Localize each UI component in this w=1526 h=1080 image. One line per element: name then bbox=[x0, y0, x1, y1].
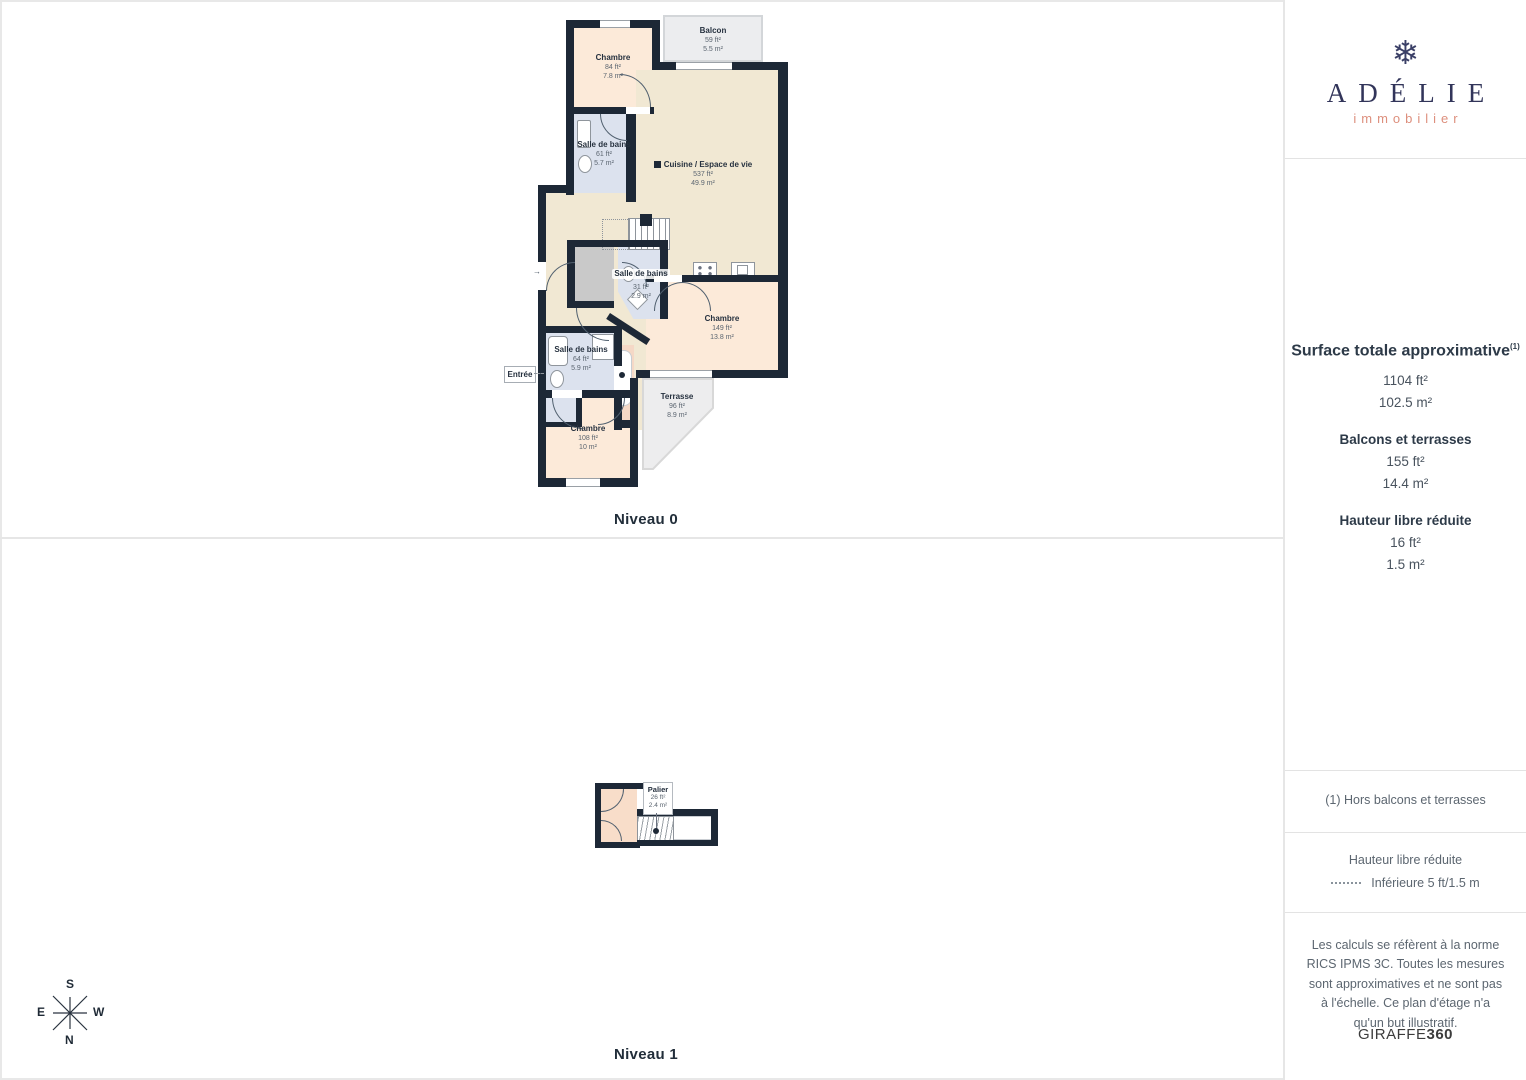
room-area-m: 13.8 m² bbox=[662, 333, 782, 342]
stair-void bbox=[672, 816, 712, 840]
room-area-m: 8.9 m² bbox=[637, 411, 717, 420]
surface-total-ft: 1104 ft² bbox=[1285, 370, 1526, 392]
credit-suffix: 360 bbox=[1426, 1026, 1453, 1043]
section-divider bbox=[1285, 158, 1526, 159]
compass-n: N bbox=[65, 1033, 74, 1047]
room-name: Salle de bains bbox=[612, 269, 669, 279]
footnote-mark: (1) bbox=[1510, 342, 1520, 351]
window bbox=[566, 478, 600, 487]
room-area-m: 10 m² bbox=[528, 443, 648, 452]
snowflake-icon: ❄ bbox=[1285, 36, 1526, 69]
disclaimer-text: Les calculs se réfèrent à la norme RICS … bbox=[1305, 936, 1506, 1033]
floorplan-page: Entrée → Chambre 84 ft² 7.8 m² Salle de … bbox=[0, 0, 1526, 1080]
room-label: Salle de bains 64 ft² 5.9 m² bbox=[541, 345, 621, 374]
niveau0-title: Niveau 0 bbox=[614, 511, 678, 528]
compass-e: E bbox=[37, 1005, 45, 1019]
room-label: Chambre 149 ft² 13.8 m² bbox=[662, 314, 782, 343]
room-area-ft: 96 ft² bbox=[637, 402, 717, 411]
room-name: Chambre bbox=[528, 424, 648, 434]
compass-rose: S N E W bbox=[33, 975, 107, 1049]
legend-block: Hauteur libre réduite Inférieure 5 ft/1.… bbox=[1285, 853, 1526, 890]
palier-callout: Palier 26 ft² 2.4 m² bbox=[643, 782, 673, 815]
kitchen-sink-basin bbox=[737, 265, 748, 275]
room-area-ft: 537 ft² bbox=[633, 170, 773, 179]
room-name: Cuisine / Espace de vie bbox=[633, 160, 773, 170]
terrace-door bbox=[650, 370, 712, 378]
room-area-m: 2.4 m² bbox=[644, 802, 672, 810]
room-area-ft: 59 ft² bbox=[653, 36, 773, 45]
room-label: Cuisine / Espace de vie 537 ft² 49.9 m² bbox=[633, 160, 773, 189]
section-divider bbox=[1285, 912, 1526, 913]
sidebar: ❄ ADÉLIE immobilier Surface totale appro… bbox=[1285, 0, 1526, 1080]
room-label: Salle de bains 31 ft² 2.9 m² bbox=[601, 262, 681, 301]
room-name: Chambre bbox=[662, 314, 782, 324]
wall-segment bbox=[567, 301, 614, 308]
room-name: Terrasse bbox=[637, 392, 717, 402]
room-area-m: 49.9 m² bbox=[633, 179, 773, 188]
window bbox=[600, 20, 630, 28]
wall-segment bbox=[538, 326, 622, 333]
balconies-m: 14.4 m² bbox=[1285, 473, 1526, 495]
reduced-height-marker-icon bbox=[654, 161, 661, 168]
entree-label: Entrée bbox=[504, 366, 536, 383]
door-gap bbox=[626, 107, 650, 114]
room-area-ft: 61 ft² bbox=[564, 150, 644, 159]
entree-leader bbox=[534, 373, 544, 374]
room-name: Balcon bbox=[653, 26, 773, 36]
credit-brand: GIRAFFE bbox=[1358, 1026, 1427, 1043]
room-area-ft: 108 ft² bbox=[528, 434, 648, 443]
room-area-m: 5.5 m² bbox=[653, 45, 773, 54]
camera-point-dot bbox=[653, 828, 659, 834]
wall-segment bbox=[637, 840, 718, 846]
reduced-title: Hauteur libre réduite bbox=[1285, 510, 1526, 532]
room-area-ft: 31 ft² bbox=[601, 283, 681, 292]
entry-arrow-icon: → bbox=[533, 267, 541, 276]
room-label: Terrasse 96 ft² 8.9 m² bbox=[637, 392, 717, 421]
room-area-ft: 64 ft² bbox=[541, 355, 621, 364]
stair-newel bbox=[640, 214, 652, 226]
brand-name: ADÉLIE bbox=[1285, 78, 1526, 109]
reduced-ft: 16 ft² bbox=[1285, 532, 1526, 554]
room-area-ft: 149 ft² bbox=[662, 324, 782, 333]
brand-block: ❄ ADÉLIE immobilier bbox=[1285, 0, 1526, 126]
balconies-ft: 155 ft² bbox=[1285, 451, 1526, 473]
surface-title: Surface totale approximative(1) bbox=[1285, 342, 1526, 360]
room-area-m: 5.9 m² bbox=[541, 364, 621, 373]
niveau1-title: Niveau 1 bbox=[614, 1046, 678, 1063]
compass-s: S bbox=[66, 977, 74, 991]
section-divider bbox=[1285, 770, 1526, 771]
wall-segment bbox=[711, 809, 718, 846]
camera-point-dot bbox=[619, 372, 625, 378]
room-label: Chambre 108 ft² 10 m² bbox=[528, 424, 648, 453]
room-label: Salle de bains 61 ft² 5.7 m² bbox=[564, 140, 644, 169]
level-divider bbox=[0, 537, 1284, 539]
credit-logo: GIRAFFE360 bbox=[1285, 1026, 1526, 1043]
wall-segment bbox=[566, 20, 574, 195]
room-name: Palier bbox=[644, 785, 672, 794]
wall-segment bbox=[538, 185, 574, 193]
wall-segment bbox=[595, 842, 640, 848]
room-name: Salle de bains bbox=[564, 140, 644, 150]
room-label: Chambre 84 ft² 7.8 m² bbox=[553, 53, 673, 82]
room-label: Balcon 59 ft² 5.5 m² bbox=[653, 26, 773, 55]
room-name: Salle de bains bbox=[541, 345, 621, 355]
balcony-door bbox=[676, 62, 732, 70]
surface-stats: Surface totale approximative(1) 1104 ft²… bbox=[1285, 342, 1526, 576]
balconies-title: Balcons et terrasses bbox=[1285, 429, 1526, 451]
reduced-m: 1.5 m² bbox=[1285, 554, 1526, 576]
wall-segment bbox=[567, 240, 668, 247]
room-area-m: 7.8 m² bbox=[553, 72, 673, 81]
room-area-ft: 84 ft² bbox=[553, 63, 673, 72]
brand-tagline: immobilier bbox=[1285, 111, 1526, 126]
door-gap bbox=[552, 390, 582, 398]
legend-item: Inférieure 5 ft/1.5 m bbox=[1371, 876, 1479, 890]
room-area-ft: 26 ft² bbox=[644, 794, 672, 802]
section-divider bbox=[1285, 832, 1526, 833]
legend-title: Hauteur libre réduite bbox=[1285, 853, 1526, 867]
room-area-m: 2.9 m² bbox=[601, 292, 681, 301]
surface-total-m: 102.5 m² bbox=[1285, 392, 1526, 414]
dotted-line-icon bbox=[1331, 882, 1361, 884]
compass-w: W bbox=[93, 1005, 104, 1019]
room-area-m: 5.7 m² bbox=[564, 159, 644, 168]
footnote-text: (1) Hors balcons et terrasses bbox=[1285, 793, 1526, 807]
